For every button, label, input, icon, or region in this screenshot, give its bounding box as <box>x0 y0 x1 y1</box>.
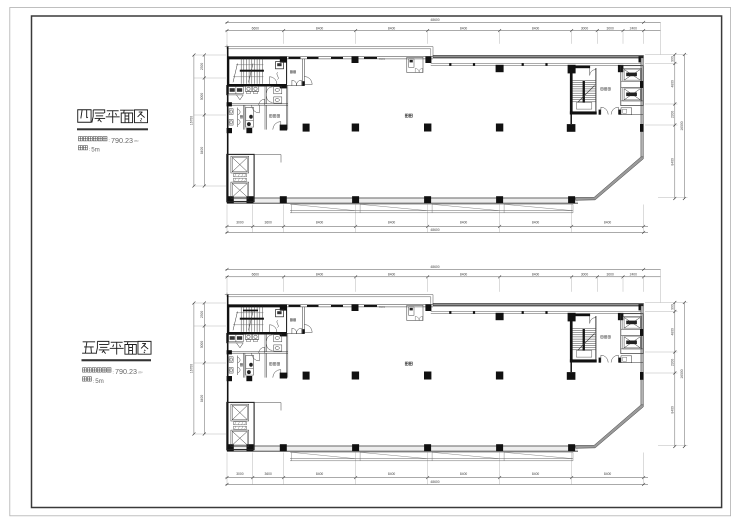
svg-text:5000: 5000 <box>200 93 204 101</box>
svg-text:8400: 8400 <box>671 406 675 414</box>
svg-text:8400: 8400 <box>532 26 540 30</box>
svg-text:8400: 8400 <box>388 472 396 476</box>
svg-text:48600: 48600 <box>430 480 439 484</box>
svg-text::: : <box>113 369 114 374</box>
svg-text:48600: 48600 <box>430 265 439 269</box>
svg-text:8400: 8400 <box>388 273 396 277</box>
svg-text:8400: 8400 <box>532 273 540 277</box>
svg-text:C909: C909 <box>379 305 386 309</box>
svg-text:C909: C909 <box>379 57 386 61</box>
svg-text:2300: 2300 <box>671 111 675 119</box>
svg-text:48600: 48600 <box>430 228 439 232</box>
svg-text:3000: 3000 <box>581 273 589 277</box>
svg-text:3600: 3600 <box>265 221 273 225</box>
svg-text:8400: 8400 <box>316 472 324 476</box>
svg-text:3000: 3000 <box>236 472 244 476</box>
svg-text:8400: 8400 <box>532 472 540 476</box>
svg-text:2300: 2300 <box>200 63 204 71</box>
svg-text::: : <box>93 378 94 383</box>
svg-text:8400: 8400 <box>604 221 612 225</box>
svg-text:6600: 6600 <box>252 273 260 277</box>
svg-text:8400: 8400 <box>671 158 675 166</box>
svg-text:8400: 8400 <box>316 26 324 30</box>
svg-text:3000: 3000 <box>236 221 244 225</box>
svg-text:8400: 8400 <box>200 147 204 155</box>
svg-text::: : <box>109 138 110 143</box>
svg-text:16700: 16700 <box>190 116 194 125</box>
svg-text:5000: 5000 <box>200 341 204 349</box>
svg-text:2300: 2300 <box>200 311 204 319</box>
svg-text:2400: 2400 <box>630 273 638 277</box>
svg-text:6600: 6600 <box>252 26 260 30</box>
svg-text:8400: 8400 <box>460 26 468 30</box>
svg-text:5m: 5m <box>95 378 104 385</box>
svg-text:8400: 8400 <box>316 273 324 277</box>
svg-text:16500: 16500 <box>680 121 684 130</box>
svg-text:8400: 8400 <box>460 472 468 476</box>
svg-text:16500: 16500 <box>680 369 684 378</box>
svg-text:3600: 3600 <box>265 472 273 476</box>
svg-text:3000: 3000 <box>581 26 589 30</box>
svg-text:4800: 4800 <box>671 80 675 88</box>
svg-text:900: 900 <box>671 56 675 62</box>
svg-text:8400: 8400 <box>460 221 468 225</box>
svg-text:2400: 2400 <box>630 26 638 30</box>
svg-text:8400: 8400 <box>604 472 612 476</box>
svg-text:790.23: 790.23 <box>111 136 133 145</box>
svg-text:8400: 8400 <box>388 26 396 30</box>
svg-text:8400: 8400 <box>532 221 540 225</box>
svg-text:8400: 8400 <box>388 221 396 225</box>
svg-text:790.23: 790.23 <box>115 367 137 376</box>
svg-text::: : <box>89 147 90 152</box>
svg-text:16700: 16700 <box>190 364 194 373</box>
svg-text:8400: 8400 <box>316 221 324 225</box>
svg-text:2300: 2300 <box>671 359 675 367</box>
svg-text:3000: 3000 <box>607 273 615 277</box>
svg-text:48600: 48600 <box>430 18 439 22</box>
svg-text:8400: 8400 <box>200 395 204 403</box>
svg-text:4800: 4800 <box>671 328 675 336</box>
svg-text:8400: 8400 <box>460 273 468 277</box>
svg-text:3000: 3000 <box>607 26 615 30</box>
svg-text:5m: 5m <box>91 147 100 154</box>
svg-text:900: 900 <box>671 304 675 310</box>
